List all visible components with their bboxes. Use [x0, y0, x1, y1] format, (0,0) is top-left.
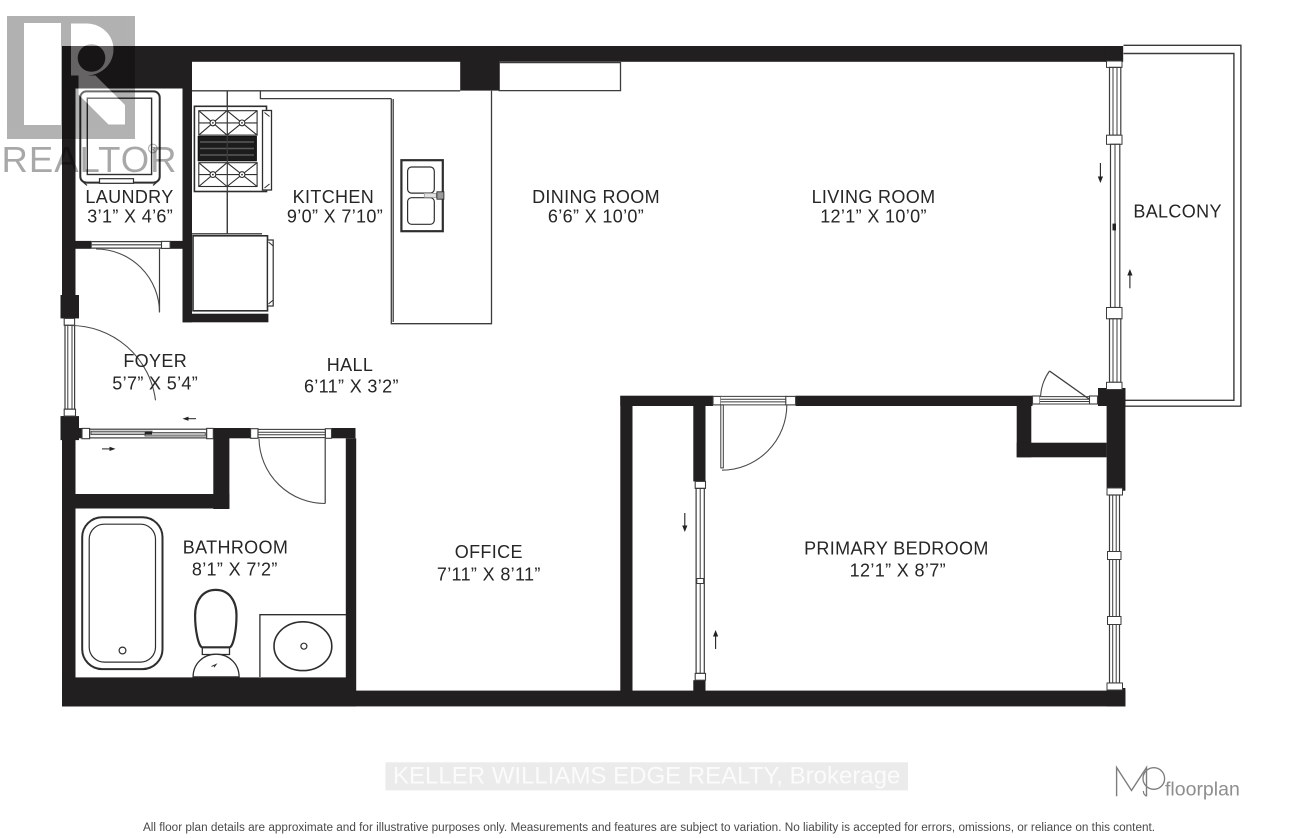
svg-text:6’11” X 3’2”: 6’11” X 3’2”: [304, 377, 399, 397]
svg-text:LAUNDRY: LAUNDRY: [85, 187, 173, 207]
svg-text:5’7” X 5’4”: 5’7” X 5’4”: [112, 373, 198, 393]
svg-text:PRIMARY BEDROOM: PRIMARY BEDROOM: [804, 539, 989, 559]
svg-text:FOYER: FOYER: [123, 351, 187, 371]
svg-text:12’1” X 8’7”: 12’1” X 8’7”: [850, 561, 946, 581]
svg-text:LIVING ROOM: LIVING ROOM: [812, 187, 936, 207]
svg-text:7’11” X 8’11”: 7’11” X 8’11”: [437, 565, 541, 585]
svg-text:9’0” X 7’10”: 9’0” X 7’10”: [287, 207, 383, 227]
svg-text:floorplan: floorplan: [1165, 779, 1240, 801]
svg-text:DINING ROOM: DINING ROOM: [532, 187, 660, 207]
svg-text:KELLER WILLIAMS EDGE REALTY, B: KELLER WILLIAMS EDGE REALTY, Brokerage: [393, 763, 900, 790]
svg-text:6’6” X 10’0”: 6’6” X 10’0”: [548, 207, 644, 227]
svg-text:All floor plan details are app: All floor plan details are approximate a…: [143, 821, 1155, 834]
svg-text:3’1” X 4’6”: 3’1” X 4’6”: [87, 207, 173, 227]
svg-text:KITCHEN: KITCHEN: [293, 187, 374, 207]
svg-text:8’1” X 7’2”: 8’1” X 7’2”: [192, 559, 278, 579]
svg-text:BATHROOM: BATHROOM: [183, 538, 288, 558]
svg-text:12’1” X 10’0”: 12’1” X 10’0”: [820, 207, 927, 227]
svg-text:BALCONY: BALCONY: [1133, 202, 1221, 222]
svg-text:HALL: HALL: [327, 355, 373, 375]
svg-text:OFFICE: OFFICE: [455, 542, 523, 562]
svg-text:R: R: [151, 146, 156, 153]
